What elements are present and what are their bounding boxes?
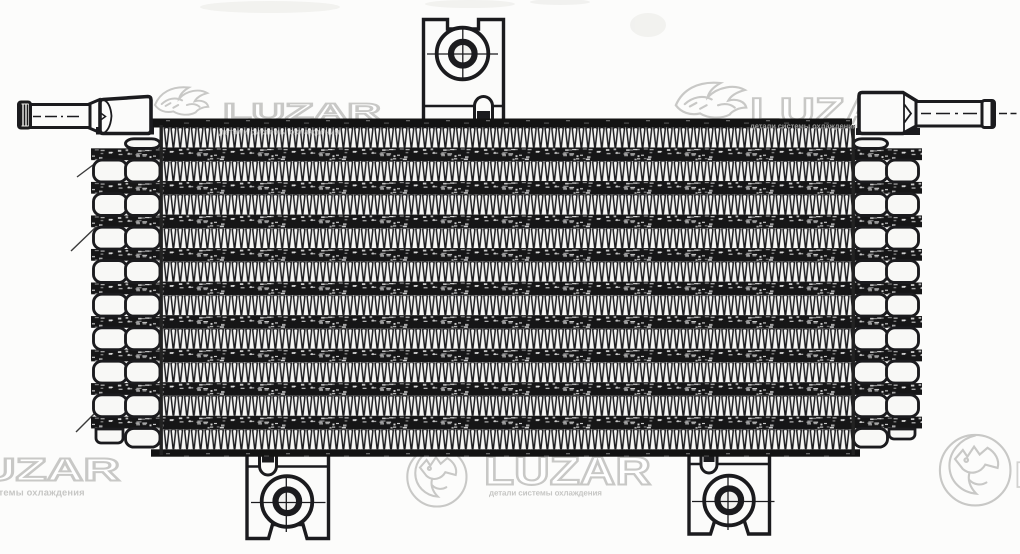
svg-text:LUZAR: LUZAR <box>0 452 120 488</box>
svg-text:L: L <box>1015 454 1020 495</box>
svg-text:детали системы охлаждения: детали системы охлаждения <box>219 127 340 137</box>
svg-text:детали системы охлаждения: детали системы охлаждения <box>489 489 602 498</box>
svg-text:системы охлаждения: системы охлаждения <box>0 488 85 498</box>
svg-text:детали системы охлаждения: детали системы охлаждения <box>750 122 857 131</box>
